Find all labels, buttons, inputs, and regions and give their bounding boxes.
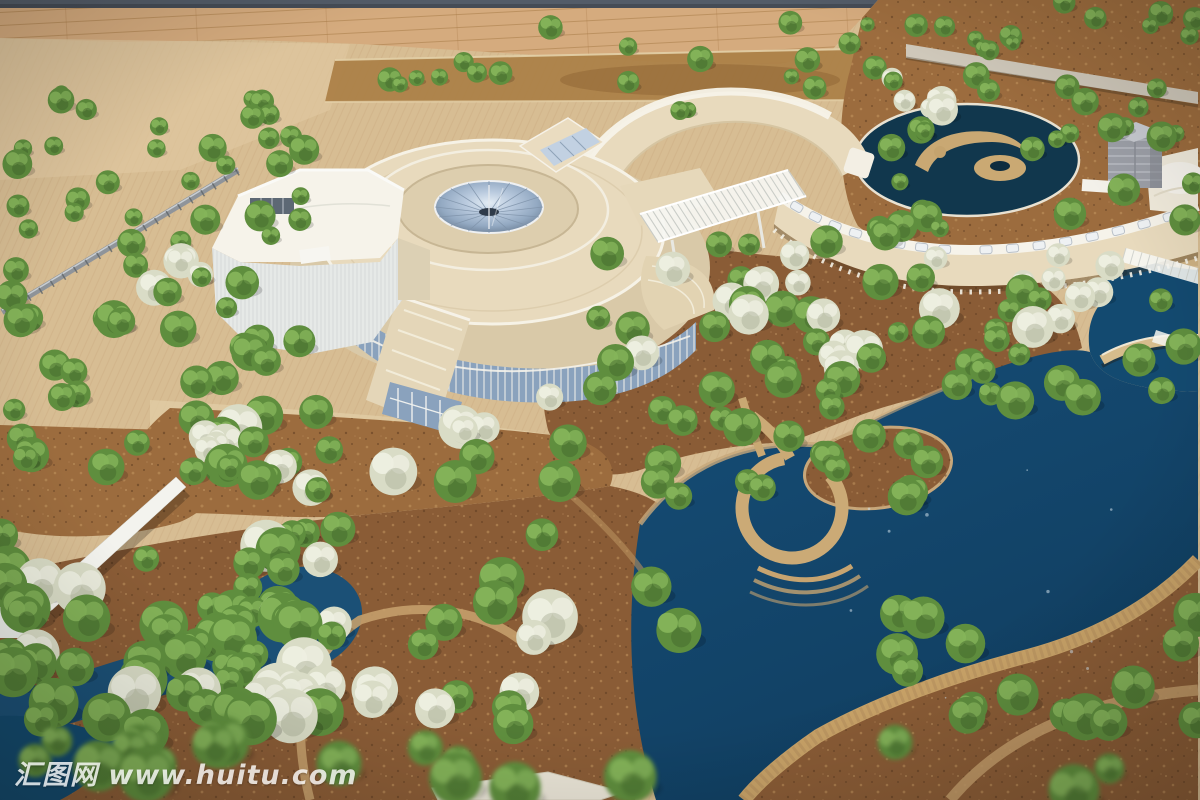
watermark: 汇图网 www.huitu.com: [14, 753, 358, 792]
scale-model-scene: [0, 0, 1200, 800]
model-photograph: 汇图网 www.huitu.com: [0, 0, 1200, 800]
watermark-text: 汇图网 www.huitu.com: [14, 760, 358, 791]
photo-vignette: [0, 0, 1200, 800]
